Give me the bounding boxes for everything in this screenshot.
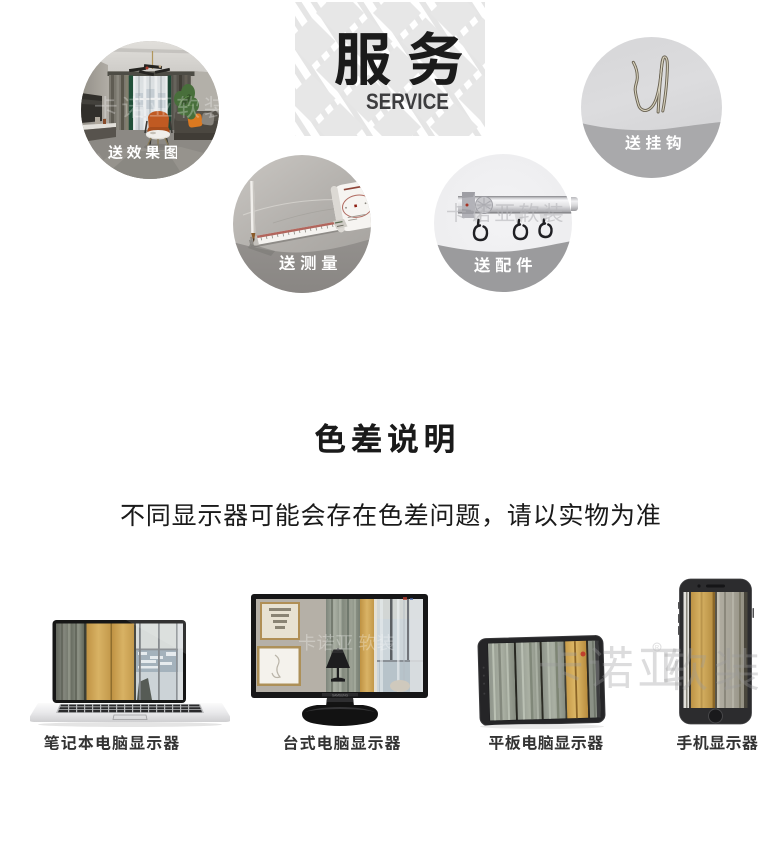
svg-text:SAMSUNG: SAMSUNG: [332, 693, 349, 697]
svg-text:R: R: [655, 645, 660, 651]
